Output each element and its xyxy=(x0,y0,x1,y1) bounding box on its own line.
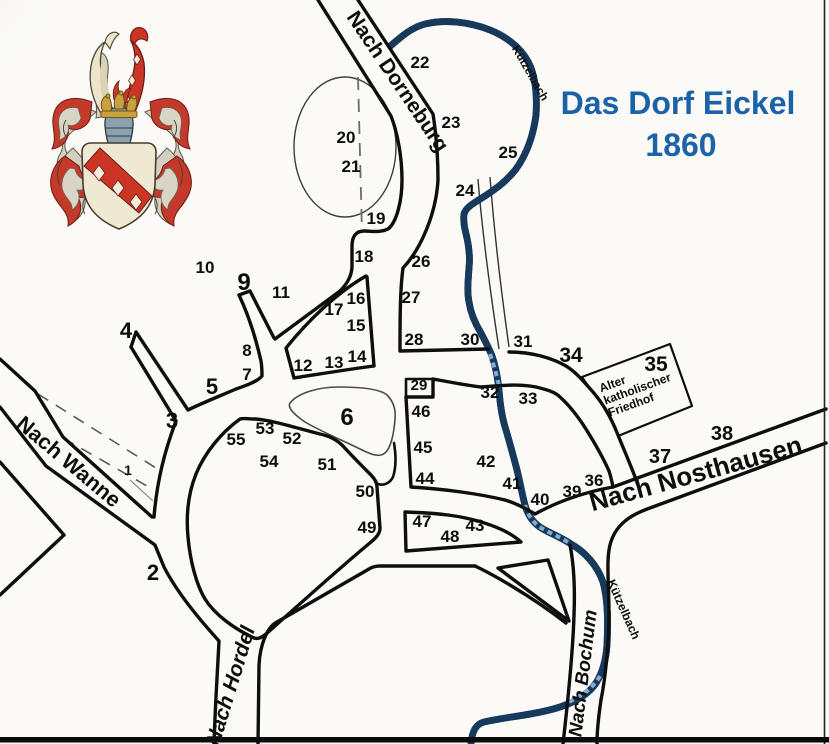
svg-text:11: 11 xyxy=(272,283,290,302)
svg-text:45: 45 xyxy=(414,438,433,457)
svg-text:36: 36 xyxy=(585,471,604,490)
svg-text:8: 8 xyxy=(242,341,251,360)
svg-text:39: 39 xyxy=(563,482,582,501)
svg-text:49: 49 xyxy=(358,518,377,537)
svg-text:26: 26 xyxy=(412,252,431,271)
svg-text:31: 31 xyxy=(514,332,533,351)
svg-text:Das Dorf Eickel: Das Dorf Eickel xyxy=(561,85,796,121)
svg-text:18: 18 xyxy=(355,247,374,266)
svg-text:6: 6 xyxy=(340,404,353,431)
svg-text:54: 54 xyxy=(260,452,279,471)
svg-text:25: 25 xyxy=(499,143,518,162)
svg-text:38: 38 xyxy=(711,423,733,445)
svg-text:5: 5 xyxy=(206,374,218,399)
svg-text:19: 19 xyxy=(367,209,386,228)
svg-text:13: 13 xyxy=(325,353,344,372)
svg-text:14: 14 xyxy=(348,347,367,366)
svg-text:30: 30 xyxy=(461,330,480,349)
svg-text:15: 15 xyxy=(347,316,366,335)
svg-text:3: 3 xyxy=(166,408,178,433)
svg-text:1: 1 xyxy=(124,462,132,478)
svg-text:46: 46 xyxy=(412,402,431,421)
svg-text:44: 44 xyxy=(416,469,435,488)
svg-text:50: 50 xyxy=(356,482,375,501)
svg-text:4: 4 xyxy=(120,318,133,343)
svg-text:9: 9 xyxy=(237,269,250,296)
svg-text:34: 34 xyxy=(559,344,583,367)
svg-text:43: 43 xyxy=(466,516,485,535)
svg-text:47: 47 xyxy=(413,512,432,531)
svg-text:7: 7 xyxy=(242,365,251,384)
svg-text:40: 40 xyxy=(531,490,550,509)
svg-text:33: 33 xyxy=(519,389,538,408)
svg-text:17: 17 xyxy=(325,300,344,319)
svg-text:1860: 1860 xyxy=(645,127,716,163)
svg-text:55: 55 xyxy=(227,430,246,449)
svg-text:27: 27 xyxy=(402,288,421,307)
svg-text:2: 2 xyxy=(147,560,159,585)
svg-text:29: 29 xyxy=(411,377,428,394)
svg-text:21: 21 xyxy=(342,157,361,176)
svg-text:24: 24 xyxy=(456,181,475,200)
svg-text:48: 48 xyxy=(441,527,460,546)
svg-text:20: 20 xyxy=(337,128,356,147)
svg-text:51: 51 xyxy=(318,455,337,474)
svg-text:35: 35 xyxy=(644,353,668,376)
svg-text:12: 12 xyxy=(294,356,313,375)
svg-text:10: 10 xyxy=(196,258,215,277)
svg-text:37: 37 xyxy=(649,446,671,468)
svg-text:42: 42 xyxy=(477,452,496,471)
svg-text:32: 32 xyxy=(481,383,500,402)
svg-text:53: 53 xyxy=(256,419,275,438)
svg-text:28: 28 xyxy=(405,330,424,349)
svg-text:23: 23 xyxy=(442,113,461,132)
svg-text:52: 52 xyxy=(283,429,302,448)
svg-text:22: 22 xyxy=(411,53,430,72)
svg-text:41: 41 xyxy=(503,474,522,493)
svg-text:16: 16 xyxy=(347,289,366,308)
